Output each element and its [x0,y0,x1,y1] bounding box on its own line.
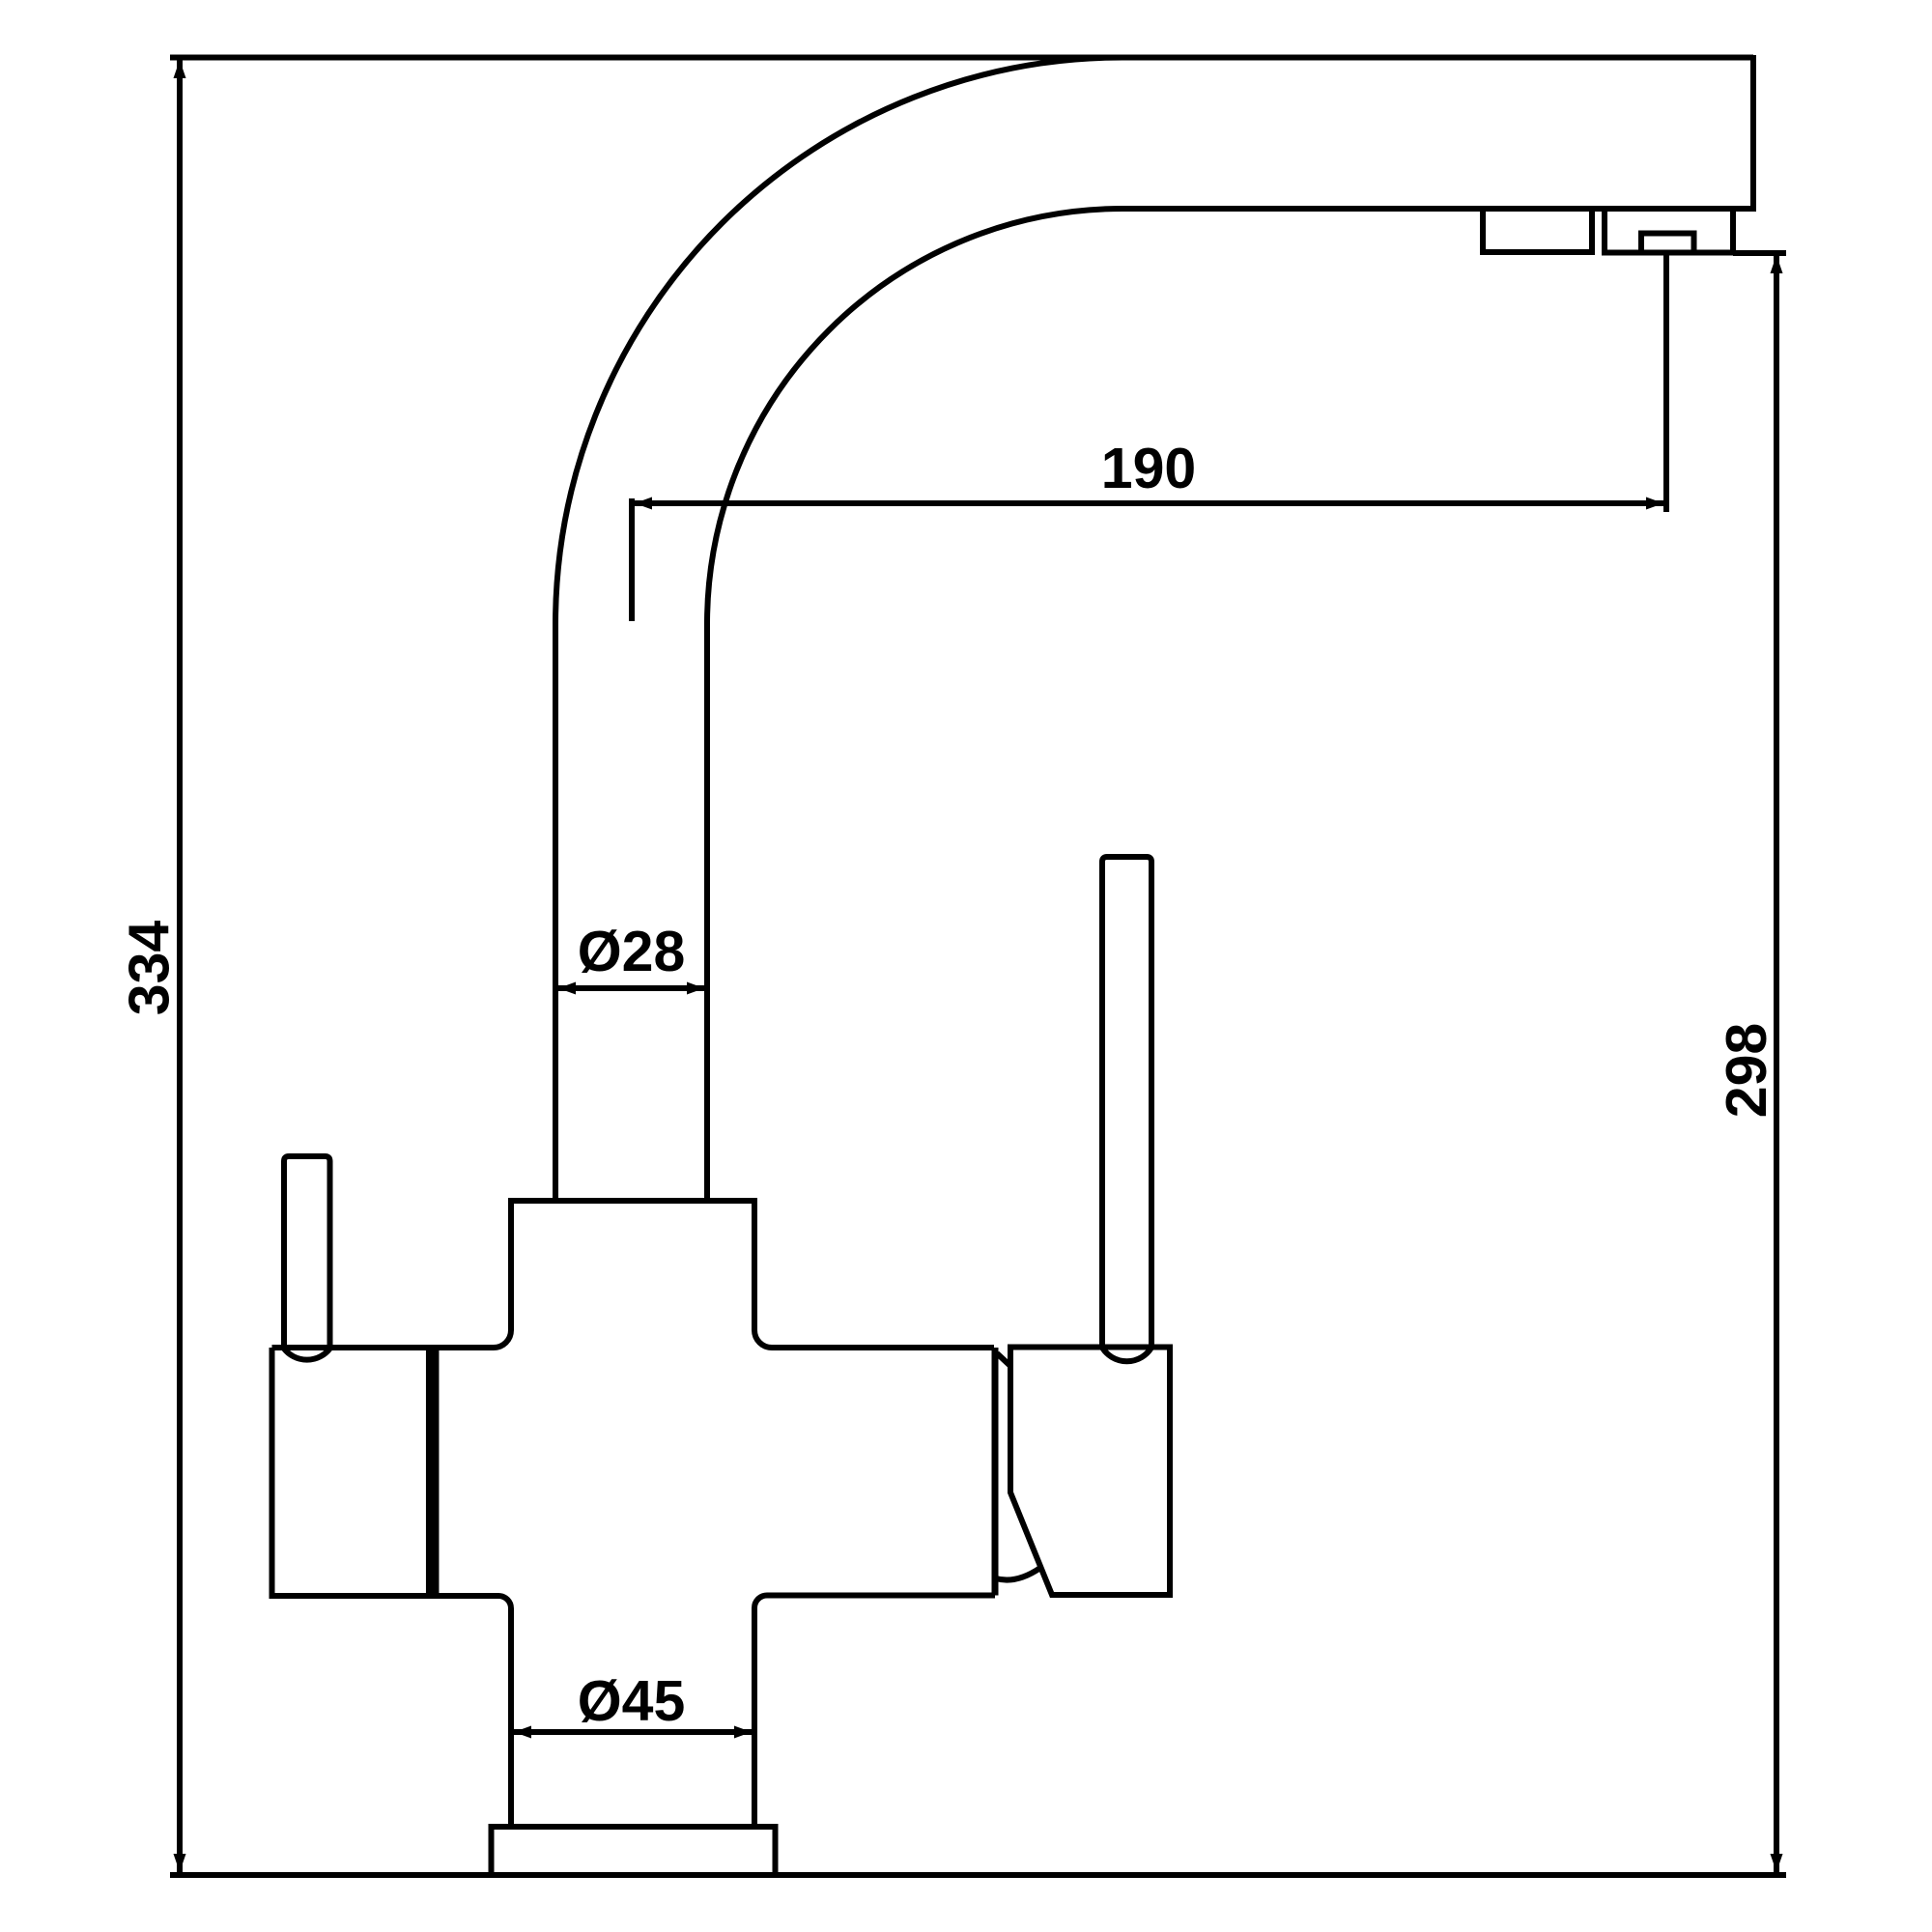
svg-text:190: 190 [1101,437,1196,500]
svg-text:Ø28: Ø28 [578,920,686,983]
svg-text:298: 298 [1715,1023,1778,1118]
svg-text:Ø45: Ø45 [578,1669,686,1733]
svg-text:334: 334 [118,921,182,1016]
